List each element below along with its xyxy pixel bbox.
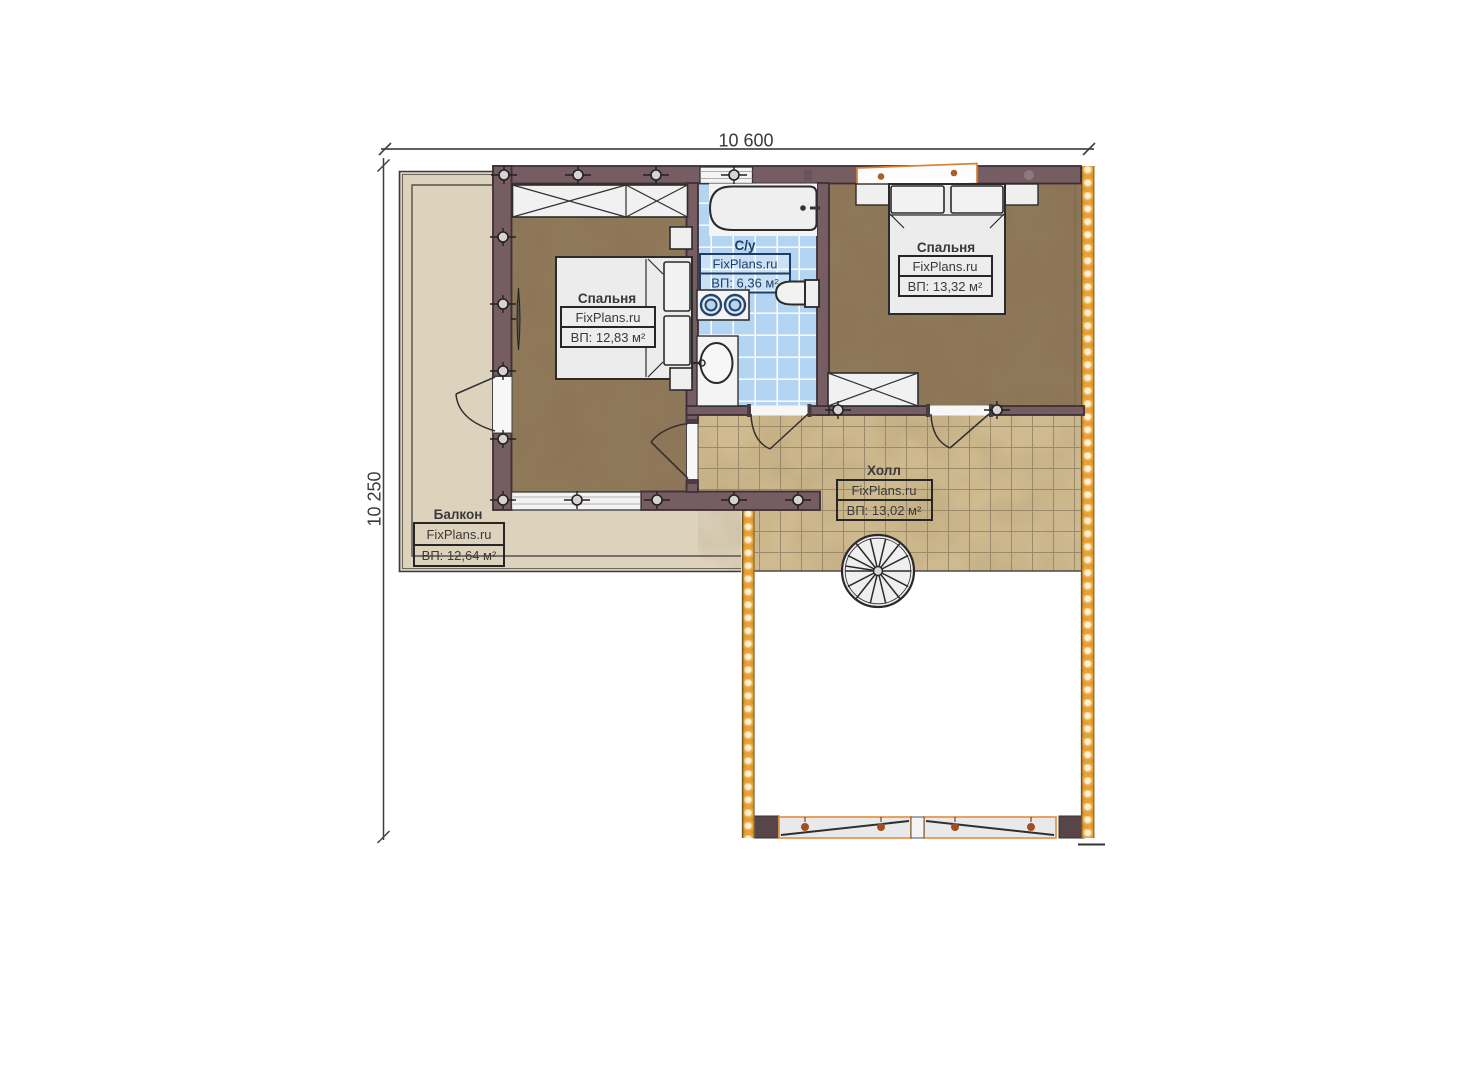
svg-text:ВП: 12,64 м²: ВП: 12,64 м² xyxy=(422,548,497,563)
svg-text:ВП: 13,02 м²: ВП: 13,02 м² xyxy=(847,503,922,518)
svg-text:ВП: 13,32 м²: ВП: 13,32 м² xyxy=(908,279,983,294)
svg-text:Балкон: Балкон xyxy=(434,507,483,522)
svg-text:С/у: С/у xyxy=(734,238,756,253)
svg-text:Спальня: Спальня xyxy=(917,240,975,255)
svg-text:ВП: 6,36 м²: ВП: 6,36 м² xyxy=(711,276,779,291)
svg-text:FixPlans.ru: FixPlans.ru xyxy=(426,527,491,542)
svg-text:FixPlans.ru: FixPlans.ru xyxy=(712,257,777,272)
svg-text:FixPlans.ru: FixPlans.ru xyxy=(575,310,640,325)
svg-text:FixPlans.ru: FixPlans.ru xyxy=(912,259,977,274)
svg-text:ВП: 12,83 м²: ВП: 12,83 м² xyxy=(571,330,646,345)
svg-text:Холл: Холл xyxy=(867,463,901,478)
svg-text:Спальня: Спальня xyxy=(578,291,636,306)
svg-text:FixPlans.ru: FixPlans.ru xyxy=(851,483,916,498)
svg-text:10 250: 10 250 xyxy=(365,471,385,526)
svg-text:10 600: 10 600 xyxy=(718,131,773,151)
